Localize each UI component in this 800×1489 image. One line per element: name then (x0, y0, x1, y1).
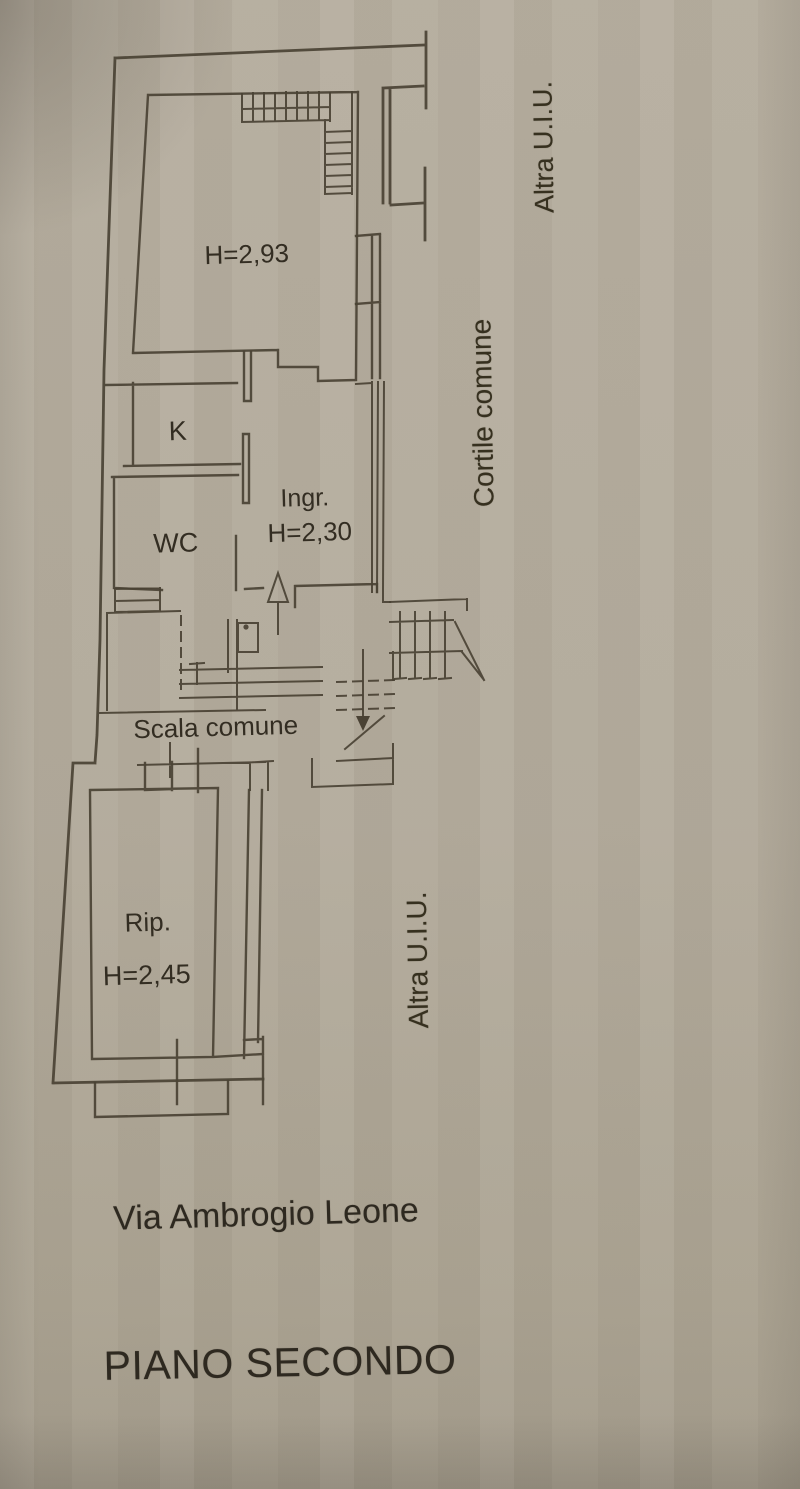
label-storage-height: H=2,45 (102, 959, 191, 991)
storage-wing-walls (90, 749, 263, 1117)
stair-up-arrow-icon (268, 573, 288, 634)
outer-walls (53, 32, 426, 1083)
label-other-unit-bottom: Altra U.I.U. (401, 891, 435, 1028)
entrance-walls (245, 584, 377, 607)
label-wc: WC (153, 527, 199, 558)
label-kitchen: K (168, 416, 187, 446)
label-entrance: Ingr. (280, 483, 329, 512)
upper-stair-flight (390, 599, 484, 680)
stair-down-arrow-icon (345, 650, 384, 749)
floor-plan-drawing: H=2,93 K WC Ingr. H=2,30 Scala comune Ri… (0, 0, 800, 1489)
label-storage: Rip. (124, 906, 171, 937)
label-entrance-height: H=2,30 (267, 516, 352, 548)
label-main-room-height: H=2,93 (204, 238, 289, 270)
label-courtyard: Cortile comune (465, 319, 500, 508)
label-other-unit-top: Altra U.I.U. (527, 81, 560, 214)
hatch-band (242, 92, 352, 194)
scanned-floor-plan-page: H=2,93 K WC Ingr. H=2,30 Scala comune Ri… (0, 0, 800, 1489)
label-common-staircase: Scala comune (133, 710, 299, 745)
floor-caption: PIANO SECONDO (103, 1336, 457, 1390)
lower-stair-flight (100, 588, 395, 790)
facade-wall (356, 234, 380, 378)
window-wall (356, 382, 390, 602)
